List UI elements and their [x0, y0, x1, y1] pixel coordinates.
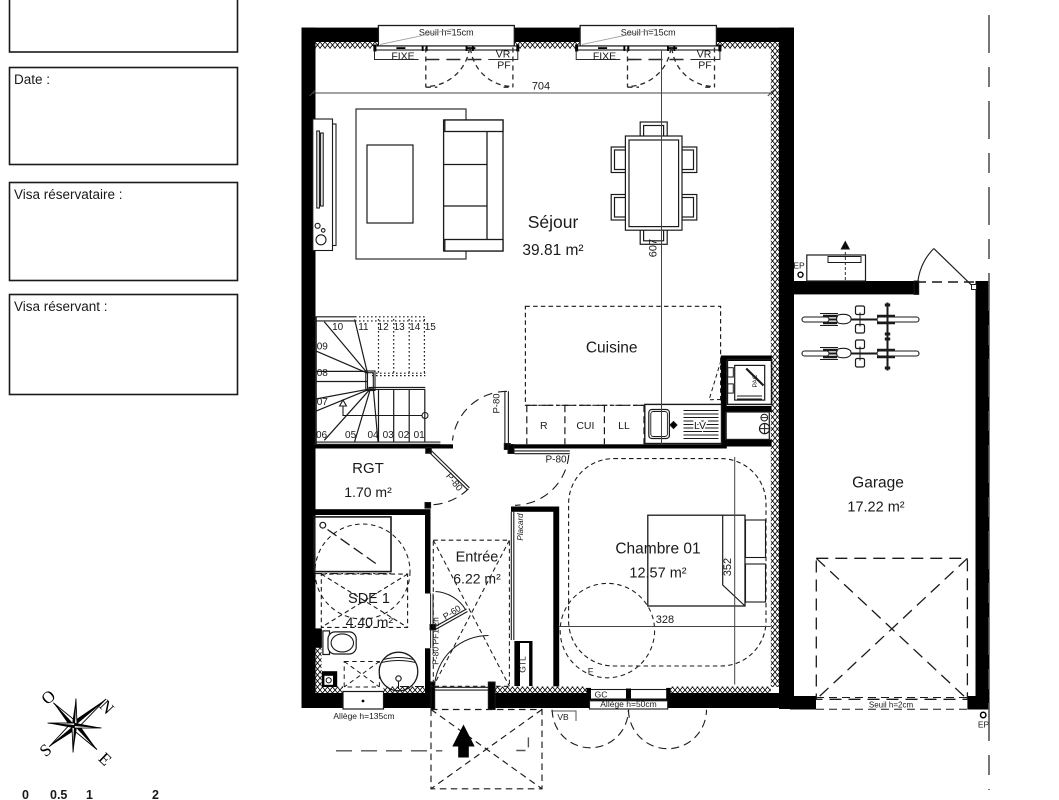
svg-text:05: 05: [345, 430, 357, 441]
svg-text:12.57 m²: 12.57 m²: [629, 566, 686, 582]
svg-text:39.81 m²: 39.81 m²: [522, 242, 583, 259]
svg-text:CUI: CUI: [576, 420, 594, 432]
svg-text:09: 09: [317, 342, 329, 353]
svg-text:Cuisine: Cuisine: [586, 340, 638, 357]
svg-text:Chambre 01: Chambre 01: [615, 541, 700, 558]
svg-text:15: 15: [425, 322, 437, 333]
svg-text:GTL: GTL: [518, 656, 528, 673]
svg-text:10: 10: [332, 322, 344, 333]
svg-text:03: 03: [383, 430, 395, 441]
svg-text:GC: GC: [595, 690, 608, 700]
svg-text:EP: EP: [793, 261, 805, 271]
svg-text:PF: PF: [497, 60, 510, 72]
svg-text:328: 328: [656, 614, 674, 626]
svg-text:VB: VB: [557, 712, 569, 722]
svg-text:17.22 m²: 17.22 m²: [847, 500, 904, 516]
svg-text:12: 12: [378, 322, 390, 333]
svg-text:FIXE: FIXE: [391, 51, 414, 63]
svg-text:R: R: [540, 420, 548, 432]
svg-text:6.22 m²: 6.22 m²: [453, 571, 501, 587]
svg-text:SDE 1: SDE 1: [348, 591, 390, 607]
svg-text:0: 0: [22, 788, 29, 800]
svg-text:Visa réservant :: Visa réservant :: [14, 299, 108, 314]
svg-text:Seuil h=15cm: Seuil h=15cm: [621, 28, 676, 38]
svg-text:F: F: [588, 667, 594, 677]
svg-text:4.40 m²: 4.40 m²: [346, 614, 394, 630]
svg-text:FIXE: FIXE: [593, 51, 616, 63]
svg-text:Seuil h=2cm: Seuil h=2cm: [869, 701, 914, 710]
svg-text:P-80: P-80: [491, 393, 502, 413]
svg-text:RGT: RGT: [352, 460, 384, 477]
svg-text:2: 2: [152, 788, 159, 800]
svg-text:LL: LL: [618, 420, 630, 432]
svg-text:Entrée: Entrée: [456, 550, 499, 566]
svg-text:1.70 m²: 1.70 m²: [344, 484, 392, 500]
svg-text:PF: PF: [698, 60, 711, 72]
svg-text:Allège h=135cm: Allège h=135cm: [333, 711, 394, 721]
svg-text:Séjour: Séjour: [528, 212, 579, 232]
svg-text:PAC: PAC: [752, 374, 759, 387]
svg-text:607: 607: [648, 239, 660, 257]
svg-text:352: 352: [722, 558, 734, 576]
svg-text:06: 06: [316, 430, 328, 441]
svg-text:LV: LV: [694, 420, 706, 432]
svg-text:04: 04: [367, 430, 379, 441]
svg-text:Allège h=50cm: Allège h=50cm: [600, 699, 656, 709]
svg-text:0.5: 0.5: [50, 788, 67, 800]
svg-text:EP: EP: [978, 720, 990, 730]
svg-text:07: 07: [317, 397, 329, 408]
svg-text:Seuil h=15cm: Seuil h=15cm: [419, 28, 474, 38]
svg-text:1: 1: [86, 788, 93, 800]
svg-text:704: 704: [532, 81, 550, 93]
svg-text:Visa réservataire :: Visa réservataire :: [14, 187, 123, 202]
svg-text:Garage: Garage: [852, 475, 904, 492]
svg-text:02: 02: [398, 430, 410, 441]
svg-text:14: 14: [409, 322, 421, 333]
svg-text:13: 13: [394, 322, 406, 333]
svg-text:P-80 PF1/2h: P-80 PF1/2h: [431, 617, 441, 665]
svg-text:08: 08: [317, 368, 329, 379]
svg-text:Placard: Placard: [516, 513, 525, 541]
svg-text:P-80: P-80: [545, 454, 567, 465]
svg-text:11: 11: [358, 322, 369, 333]
svg-text:Date :: Date :: [14, 72, 50, 87]
svg-text:01: 01: [414, 430, 426, 441]
